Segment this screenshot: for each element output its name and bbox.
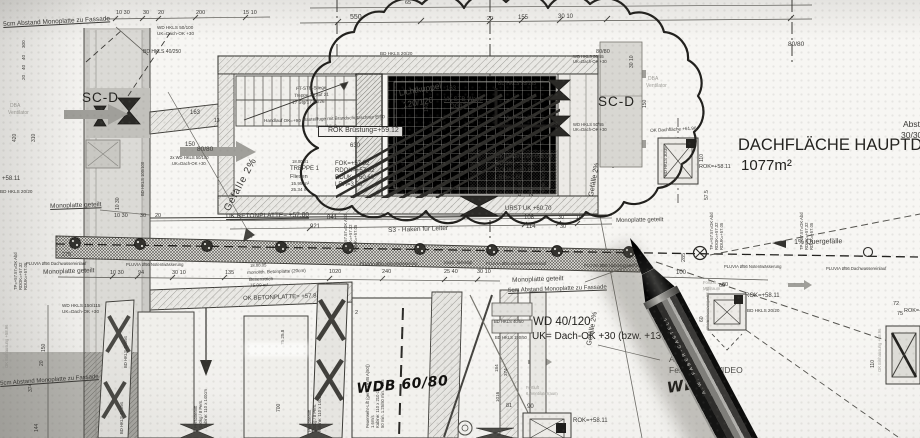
drawing-linework (0, 0, 920, 438)
level-label: ROK=+58.11 (573, 418, 608, 425)
level-label: ROK=+58.11 (699, 164, 731, 170)
storey-label: OG17 (450, 104, 466, 111)
duct-label: UK=Dach-OK +30 (172, 162, 206, 167)
room-perimeter: 25.34 m (291, 187, 308, 192)
hvac-label-dba: DBA (10, 104, 20, 110)
duct-label: BD HKLS 144/94 (120, 402, 125, 434)
dim: 374 (29, 384, 35, 392)
duct-label: BD HKLS 150/50 (495, 336, 527, 341)
dim: 40 (21, 65, 26, 70)
level-line: RDUK=+57.05 (354, 214, 359, 252)
hvac-label-dba: DBA (648, 77, 658, 83)
handrail-note: Handlauf OK=+90 (264, 118, 301, 123)
duct-label-large: WD 40/120 (533, 316, 591, 330)
level-label: ROK=+58.11 (745, 293, 780, 300)
section-marker-sc-d-left: SC-D (82, 90, 119, 106)
dim: 150 (185, 142, 195, 149)
dim: 630 (350, 143, 360, 150)
dim: 57.5 (705, 190, 711, 200)
section-marker-sc-d-right: SC-D (598, 94, 635, 110)
duct-label: BD HKLS 100/100 (141, 162, 146, 196)
slab-note: 75.09 m² (250, 282, 268, 288)
level-label: OK Einhausung +58.96 (5, 325, 10, 368)
level-label: OK Einhausung +58.96 (706, 287, 711, 330)
drain-level-block: TP=+57.57=OK Abd RDOK=+57.32 RDUK=+57.05 (14, 252, 29, 290)
lift-line: Kabine: 110 x 140cm (318, 393, 323, 432)
roof-area-title: DACHFLÄCHE HAUPTDACH (738, 136, 920, 155)
dim: 163 (190, 110, 200, 117)
drain-level-block: TP=+57.57=OK Abd RDOK=+57.32 RDUK=+57.05 (344, 214, 359, 252)
stair-label: 17 Stg/17.64/26 (292, 99, 325, 106)
dim: 30 10 (558, 14, 573, 21)
level-block: LRH=3.28 (335, 182, 362, 189)
pluvia-label: PLUVIA Ø56 Notentwässerung (724, 265, 782, 270)
dim: 30 (558, 215, 564, 221)
room-name: TREPPE 1 (290, 166, 319, 173)
dim: 110 (871, 360, 877, 368)
pluvia-label: PLUVIA Ø56 Dachwassereinlauf (826, 267, 886, 272)
dim: 20 (40, 360, 46, 366)
dim: 25 40 (444, 269, 458, 275)
duct-label: BD HKLS 55/155 (498, 82, 536, 88)
dim: 30 (140, 213, 146, 219)
duct-label: UK=Dach-OK +30 (62, 309, 99, 314)
dim: 150 (643, 100, 649, 108)
duct-label: WD HKLS 50/100 (157, 25, 193, 30)
note-monoplatte: Monoplatte geteilt (616, 217, 663, 225)
dim: 275 (62, 252, 71, 258)
dim: 30 10 (630, 55, 636, 68)
dim: 374 (503, 368, 508, 376)
dim: 40 (21, 55, 26, 60)
duct-label: BD HKLS 30/35 (664, 146, 669, 176)
slab-note: Besenstrich (249, 276, 273, 282)
dim: 10 30 (114, 213, 128, 219)
parapet-level-box: ROK Brüstung=+59.12 (318, 126, 403, 137)
room-area: 15.95 m² (291, 181, 309, 186)
dim: 90 (527, 404, 534, 411)
clipped-note: 30/30 (901, 130, 920, 140)
lift-line: Kabine: 110 x 140cm (204, 389, 209, 428)
dim: 20 (487, 16, 493, 22)
slab-note-nr: 18.00.05 (250, 263, 266, 269)
elevator-label: Personenlift 630kg / 8 Pers. Kabine: 110… (308, 393, 323, 432)
dim: 50 (497, 431, 502, 436)
duct-label: BD HKLS 20/20 (380, 51, 412, 56)
dim: 72 (893, 301, 899, 307)
dim: 30 (560, 224, 566, 230)
dim: 10 30 (116, 10, 130, 16)
drain-level-block: TP=+57.57=OK Abd RDOK=+57.32 RDUK=+57.05 (710, 212, 725, 250)
hvac-label: 6. Ventilatorraum (526, 392, 558, 397)
dim: 80/80 (788, 41, 804, 49)
duct-label: BD HKLS 40/50 (494, 320, 524, 325)
pluvia-label: PLUVIA Ø56 Notentwässerung (360, 262, 418, 267)
duct-label: UK=Dach-OK +30 (157, 31, 194, 36)
duct-label: BD HKLS 20/20 (0, 189, 32, 194)
dim: 841 (327, 215, 337, 222)
dim: 20 (158, 10, 164, 16)
dim: 94 (138, 270, 144, 276)
dim: 65 (405, 0, 411, 6)
dim: 184 (494, 364, 499, 372)
clipped-note: Abst (903, 119, 920, 129)
pluvia-label: PLUVIA Ø56 Notentwässerung (126, 263, 184, 268)
duct-label: BD HKLS 40/250 (143, 50, 181, 56)
dim: 20 (21, 75, 26, 80)
dim: 100 (676, 270, 686, 277)
dim: 2 (355, 310, 358, 316)
blurred-region (246, 342, 308, 357)
elevator-label: Personenlift 630kg / 8 Pers. Kabine: 110… (194, 389, 209, 428)
dim: 240 (382, 269, 391, 275)
level-label: OK Einhausung +58.96 (878, 329, 883, 372)
dim: 285 (681, 253, 687, 262)
duct-label: BD HKLS 20/20 (747, 308, 779, 313)
level-line: RDUK=+57.05 (24, 252, 29, 290)
level-label: +58.11 (2, 176, 20, 183)
level-label: ROK +57.46 (541, 167, 546, 192)
dim: 1016 (495, 392, 500, 402)
dim: 420 (13, 134, 19, 142)
dim: 10 30 (110, 270, 124, 276)
dim: 1020 (329, 269, 341, 275)
pluvia-label: PLUVIA Ø56 Dachwassereinlauf (486, 262, 546, 267)
dim: 13 (214, 119, 220, 125)
dim: 80/80 (596, 49, 610, 55)
slab-level-label: UK BETONPLATTE= +57.80 (226, 212, 309, 221)
level-label: ROK=+58.11 (904, 308, 920, 314)
dim: 921 (310, 224, 320, 231)
slab-edge-label: VK STB-Decke (505, 115, 536, 120)
hvac-label-ventilator: Ventilator (646, 84, 667, 90)
dim: 700 (277, 404, 283, 412)
dim: 140 (425, 104, 431, 112)
dim: 75 (897, 311, 903, 317)
dim: 550 (350, 14, 362, 22)
duct-label: UK=Dach-OK +30 (573, 128, 607, 133)
pluvia-label: PLUVIA Ø56 Dachwassereinlauf (26, 262, 86, 267)
dim: 81 (506, 403, 512, 409)
dim: 300 (21, 40, 26, 48)
dim: 30 10 (172, 270, 186, 276)
dim: 10 (576, 215, 582, 221)
dim: 80/80 (197, 146, 213, 154)
dim: 114 (526, 224, 536, 231)
dim: 135 (225, 270, 234, 276)
duct-label: WD HKLS 150/115 (62, 303, 100, 308)
duct-label: UK=Dach-OK +30 (573, 60, 607, 65)
room-number: 18.00.01 (292, 160, 308, 165)
dim: 110 (700, 154, 706, 162)
dim: DGL 90 (517, 180, 522, 196)
dim: 163 (446, 86, 456, 93)
lift-line: 50 min. 1.25/50 min. +185 (381, 364, 386, 428)
hvac-label-ventilator: Ventilator (8, 111, 29, 117)
dim: 20 (155, 213, 161, 219)
dim: 10 30 (116, 197, 122, 210)
level-label: URST UK +60.70 (505, 206, 551, 213)
dim: 108 (524, 215, 534, 222)
dim: 60 (722, 282, 728, 288)
dim: 150 (42, 344, 48, 352)
dim: 15 10 (243, 10, 257, 16)
stair-label: FT-STB-Stiege (296, 85, 327, 91)
dim: 210 (530, 188, 536, 196)
slope-label-quer: 1% Quergefälle (794, 238, 842, 247)
dim: 30 10 (477, 269, 491, 275)
dim: 200 (196, 10, 205, 16)
blueprint-photo: 5cm Abstand Monoplatte zu Fassade DBA Ve… (0, 0, 920, 438)
dim: 310 (32, 134, 38, 142)
roof-area-value: 1077m² (741, 157, 792, 175)
note-befestigt: mech. befestigt (444, 261, 472, 266)
room-finish: Fliesen (290, 174, 308, 180)
dim: 144 (35, 424, 41, 432)
dim: 155 (518, 15, 528, 22)
dim: 30 (143, 10, 149, 16)
level-line: RDUK=+57.05 (720, 212, 725, 250)
duct-label: BD HKLS 150/94 (124, 336, 129, 368)
